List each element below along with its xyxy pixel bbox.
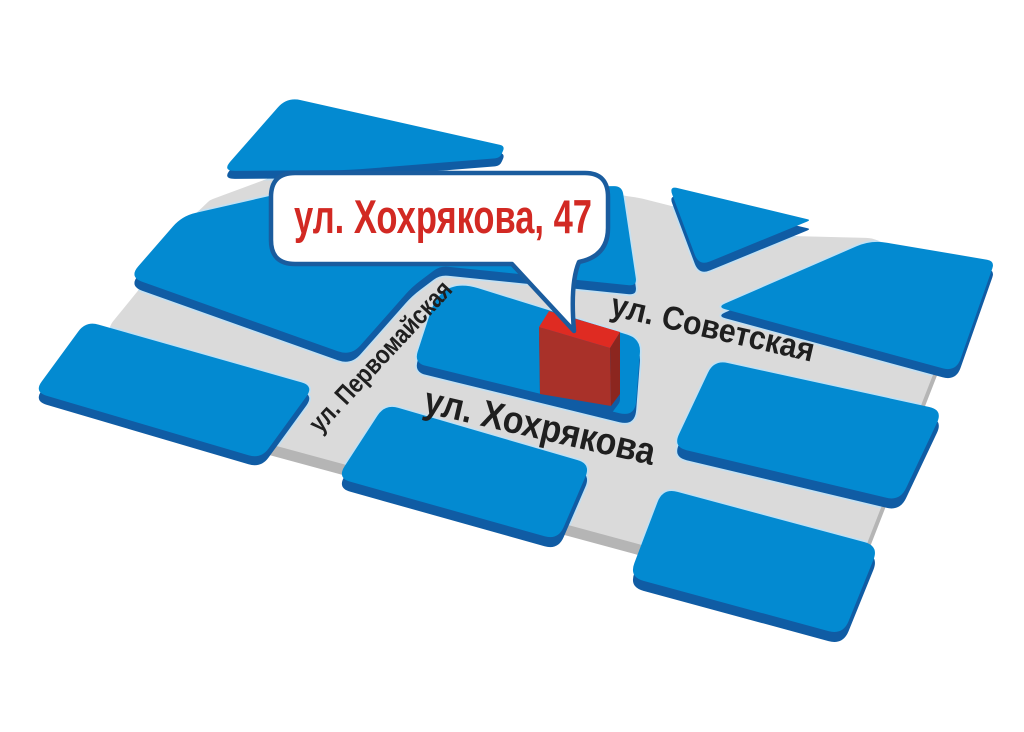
svg-text:ул. Хохрякова, 47: ул. Хохрякова, 47 (294, 190, 592, 243)
